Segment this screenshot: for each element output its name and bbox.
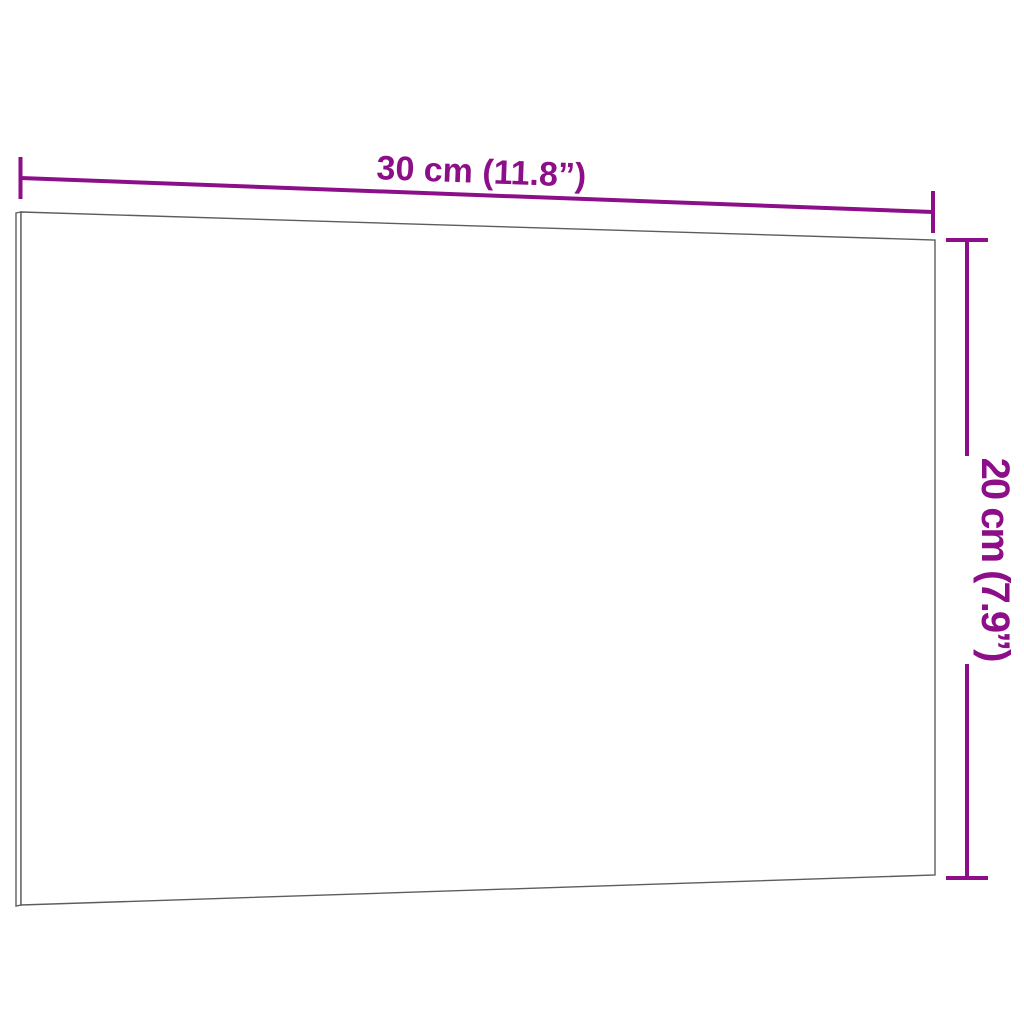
board-front-face [21, 212, 935, 905]
diagram-svg: 30 cm (11.8”) 20 cm (7.9”) [0, 0, 1024, 1024]
dimension-diagram: 30 cm (11.8”) 20 cm (7.9”) [0, 0, 1024, 1024]
height-dimension-label: 20 cm (7.9”) [973, 458, 1017, 661]
width-dimension-label: 30 cm (11.8”) [376, 149, 587, 195]
board-left-edge [16, 212, 21, 906]
